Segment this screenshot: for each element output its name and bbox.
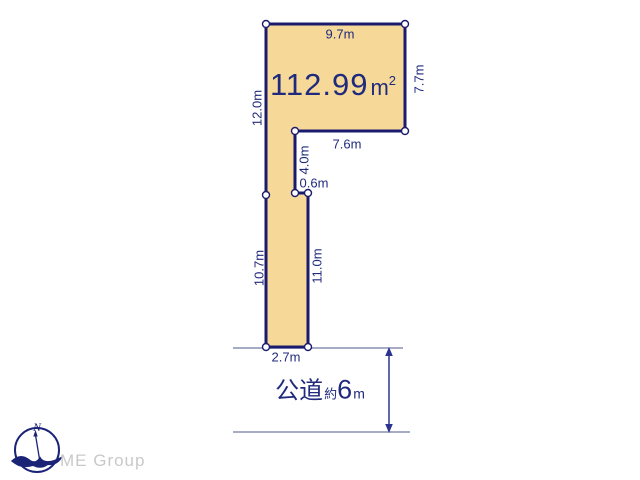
dim-strip-right-height: 11.0m	[310, 248, 325, 283]
road-width-value: 6	[337, 375, 352, 406]
dim-right-height: 7.7m	[412, 65, 427, 94]
road-width-arrow	[385, 347, 393, 433]
dim-left-upper-height: 12.0m	[250, 90, 265, 126]
compass-north-letter: N	[32, 420, 42, 434]
dim-top-width: 9.7m	[326, 27, 355, 42]
area-superscript: 2	[389, 73, 396, 88]
road-name: 公道	[275, 371, 323, 406]
logo-text: ME Group	[60, 451, 145, 471]
dim-notch-depth: 4.0m	[297, 146, 312, 175]
compass-bird-icon	[11, 456, 63, 468]
dim-step-width: 0.6m	[300, 176, 329, 191]
road-approx: 約	[324, 384, 337, 403]
dim-frontage-width: 2.7m	[272, 350, 301, 365]
parcel-area-label: 112.99 m 2	[270, 67, 396, 103]
dim-notch-width: 7.6m	[333, 137, 362, 152]
dim-left-lower-height: 10.7m	[252, 250, 267, 286]
area-value: 112.99	[270, 67, 369, 103]
road-label: 公道 約 6 m	[275, 371, 365, 406]
road-width-unit: m	[353, 386, 365, 402]
lot-diagram: 9.7m 7.7m 12.0m 7.6m 4.0m 0.6m 10.7m 11.…	[0, 0, 640, 480]
area-unit: m	[370, 75, 388, 101]
